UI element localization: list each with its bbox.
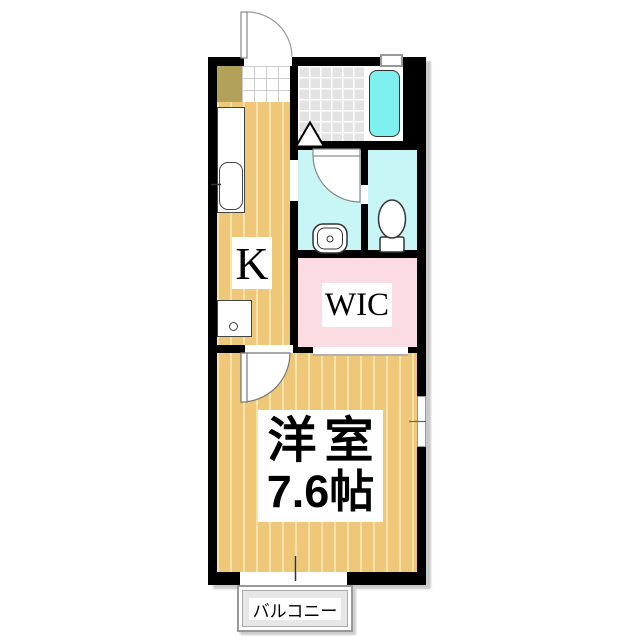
kitchen-label: K: [232, 237, 272, 289]
entrance-door-arc: [247, 12, 292, 57]
floorplan: K WIC 洋室 7.6帖 バルコニー: [0, 0, 640, 640]
western-room-name: 洋室: [259, 415, 381, 468]
entrance-door-leaf: [241, 12, 247, 58]
room-door-leaf: [241, 353, 247, 402]
bath-folding-door-icon: [296, 123, 324, 147]
toilet-tank-icon: [380, 237, 404, 252]
wic-label: WIC: [322, 283, 392, 327]
wic-label-text: WIC: [325, 287, 389, 324]
balcony-label: バルコニー: [249, 598, 341, 620]
room-door-arc: [241, 353, 290, 402]
washroom-door-arc: [313, 155, 360, 202]
western-room-label: 洋室 7.6帖: [258, 410, 383, 522]
kitchen-label-text: K: [235, 237, 268, 290]
washroom-door-leaf: [313, 149, 360, 156]
balcony-label-text: バルコニー: [253, 597, 338, 622]
toilet-bowl-icon: [379, 200, 406, 238]
western-room-size: 7.6帖: [267, 468, 375, 517]
balcony: バルコニー: [237, 585, 353, 632]
door-symbols-layer: [0, 0, 640, 640]
basin-drain-icon: [327, 236, 333, 242]
